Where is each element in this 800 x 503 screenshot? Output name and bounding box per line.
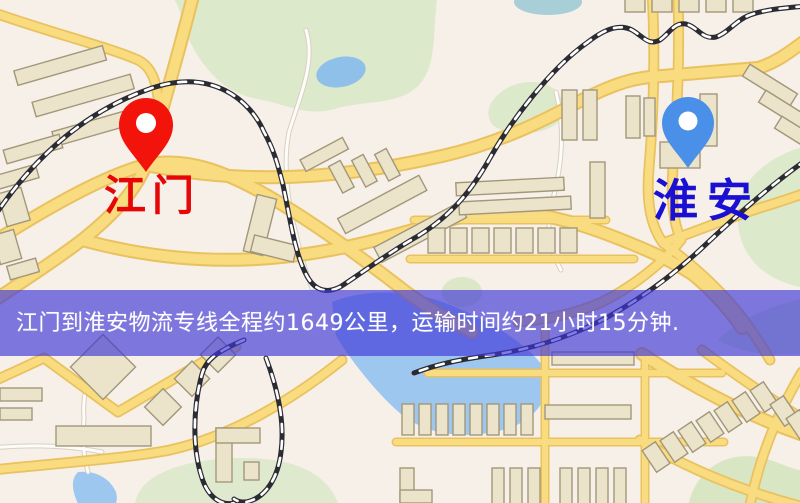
map-view: 江门 淮安 江门到淮安物流专线全程约1649公里，运输时间约21小时15分钟. xyxy=(0,0,800,503)
map-image[interactable] xyxy=(0,0,800,503)
route-info-text: 江门到淮安物流专线全程约1649公里，运输时间约21小时15分钟. xyxy=(16,305,679,337)
origin-label: 江门 xyxy=(72,175,232,217)
route-info-banner: 江门到淮安物流专线全程约1649公里，运输时间约21小时15分钟. xyxy=(0,290,800,356)
destination-label: 淮安 xyxy=(622,178,792,223)
